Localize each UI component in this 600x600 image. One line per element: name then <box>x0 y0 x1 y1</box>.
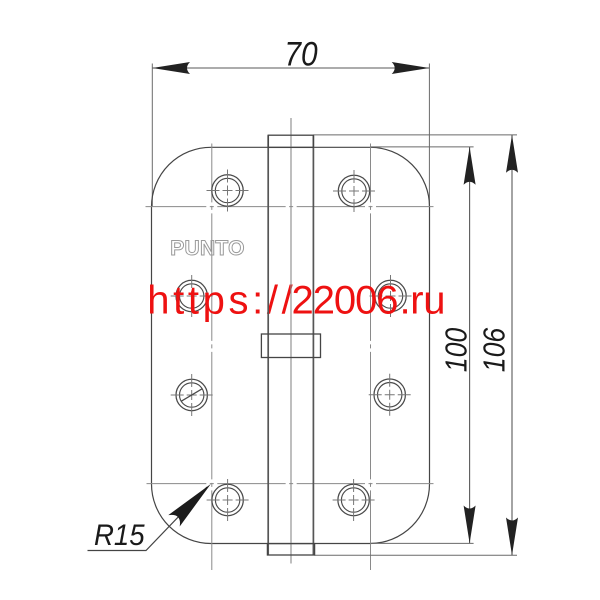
svg-text:PUNTO: PUNTO <box>170 237 245 260</box>
svg-text:70: 70 <box>284 35 317 73</box>
svg-text:R15: R15 <box>94 519 146 552</box>
svg-text:https://22006.ru: https://22006.ru <box>147 279 445 323</box>
svg-text:100: 100 <box>440 328 474 372</box>
svg-text:106: 106 <box>478 327 512 372</box>
